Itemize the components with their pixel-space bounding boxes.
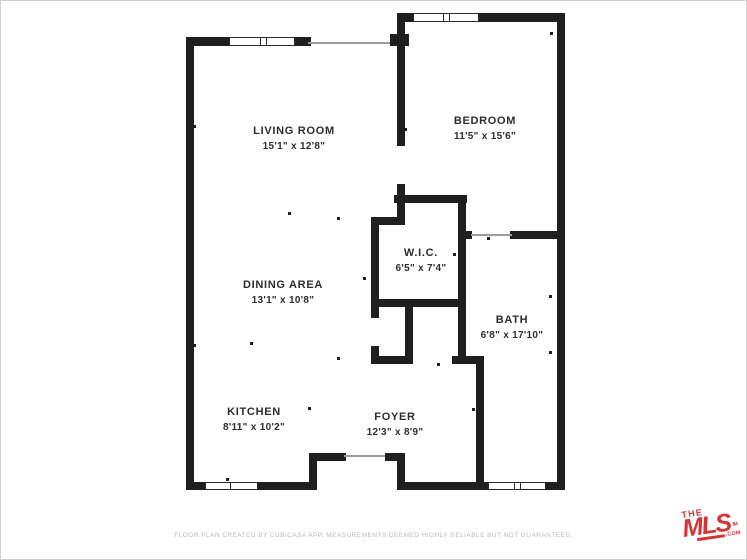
measure-tick	[472, 408, 475, 411]
measure-tick	[308, 407, 311, 410]
wall	[371, 217, 379, 307]
window-divider	[443, 14, 444, 21]
wall	[371, 307, 379, 318]
wall	[510, 231, 557, 239]
room-label-dining-area: DINING AREA 13'1" x 10'8"	[243, 278, 323, 307]
room-dimensions: 6'5" x 7'4"	[396, 262, 447, 275]
measure-tick	[509, 19, 512, 22]
window-divider	[449, 14, 450, 21]
wall	[476, 358, 484, 490]
room-name: LIVING ROOM	[253, 124, 335, 138]
window-divider	[266, 38, 267, 45]
room-dimensions: 15'1" x 12'8"	[253, 140, 335, 153]
room-dimensions: 13'1" x 10'8"	[243, 294, 323, 307]
window	[205, 482, 258, 490]
room-label-living-room: LIVING ROOM 15'1" x 12'8"	[253, 124, 335, 153]
measure-tick	[487, 237, 490, 240]
room-name: BATH	[481, 313, 544, 327]
wall	[557, 13, 565, 490]
measure-tick	[250, 342, 253, 345]
window	[229, 37, 295, 46]
wall	[371, 356, 413, 364]
wall	[544, 482, 565, 490]
room-name: FOYER	[367, 410, 424, 424]
room-name: KITCHEN	[223, 405, 285, 419]
measure-tick	[549, 351, 552, 354]
measure-tick	[193, 344, 196, 347]
wall	[186, 37, 194, 490]
measure-tick	[549, 295, 552, 298]
room-dimensions: 11'5" x 15'6"	[454, 130, 516, 143]
opening-line	[308, 42, 398, 44]
measure-tick	[363, 277, 366, 280]
wall	[458, 203, 466, 364]
measure-tick	[402, 32, 405, 35]
measure-tick	[337, 217, 340, 220]
measure-tick	[337, 357, 340, 360]
measure-tick	[428, 200, 431, 203]
measure-tick	[453, 253, 456, 256]
wall	[256, 482, 312, 490]
room-dimensions: 8'11" x 10'2"	[223, 421, 285, 434]
bath-door-opening	[471, 234, 512, 236]
wall	[309, 453, 346, 461]
measure-tick	[404, 128, 407, 131]
measure-tick	[288, 212, 291, 215]
room-name: DINING AREA	[243, 278, 323, 292]
window	[488, 482, 546, 490]
entry-door-opening	[344, 455, 387, 457]
room-label-kitchen: KITCHEN 8'11" x 10'2"	[223, 405, 285, 434]
room-name: W.I.C.	[396, 246, 447, 260]
wall	[371, 299, 466, 307]
floor-plan-page: LIVING ROOM 15'1" x 12'8" BEDROOM 11'5" …	[0, 0, 747, 560]
measure-tick	[437, 363, 440, 366]
window	[413, 13, 479, 22]
window-divider	[260, 38, 261, 45]
wall	[186, 37, 231, 46]
wall	[458, 231, 472, 239]
room-label-foyer: FOYER 12'3" x 8'9"	[367, 410, 424, 439]
window-divider	[230, 483, 231, 489]
room-label-bedroom: BEDROOM 11'5" x 15'6"	[454, 114, 516, 143]
room-name: BEDROOM	[454, 114, 516, 128]
room-label-wic: W.I.C. 6'5" x 7'4"	[396, 246, 447, 275]
measure-tick	[193, 125, 196, 128]
wall	[477, 13, 565, 22]
room-dimensions: 12'3" x 8'9"	[367, 426, 424, 439]
window-divider	[514, 483, 515, 489]
room-dimensions: 6'8" x 17'10"	[481, 329, 544, 342]
measure-tick	[550, 32, 553, 35]
window-divider	[520, 483, 521, 489]
room-label-bath: BATH 6'8" x 17'10"	[481, 313, 544, 342]
measure-tick	[226, 478, 229, 481]
disclaimer-text: FLOOR PLAN CREATED BY CUBICASA APP. MEAS…	[1, 532, 746, 539]
